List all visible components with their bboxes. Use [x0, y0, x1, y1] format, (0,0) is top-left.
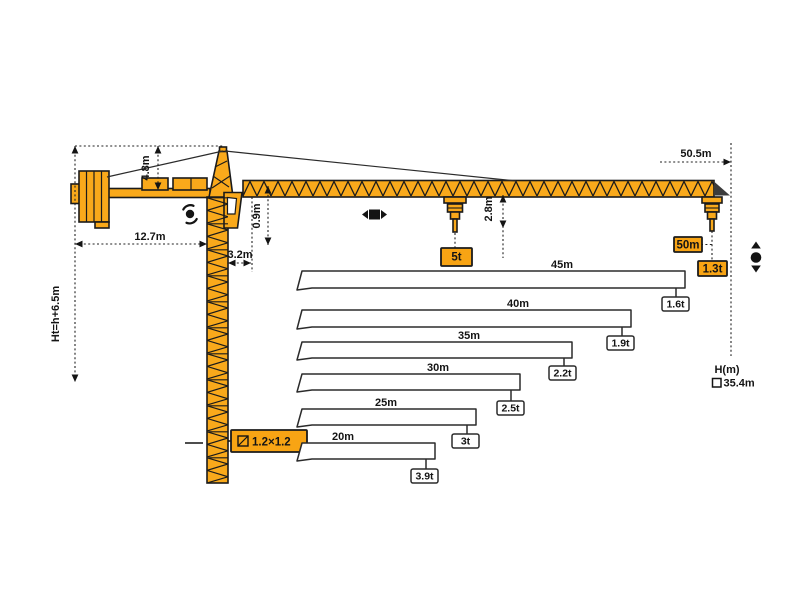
jib-tip-cap — [714, 182, 730, 196]
bar-label-35m: 35m — [458, 330, 480, 342]
bar-25m — [297, 409, 476, 427]
dim-min-radius: 3.2m — [227, 249, 252, 261]
bar-label-45m: 45m — [551, 259, 573, 271]
trolley-hook-tip — [702, 197, 722, 231]
dim-tower-head-height: 4.8m — [140, 155, 152, 180]
tip-capacity-label: 1.3t — [703, 264, 723, 276]
max-capacity-label: 5t — [451, 252, 461, 264]
height-legend-value: 35.4m — [724, 378, 755, 390]
dim-counterjib-length: 12.7m — [134, 231, 165, 243]
tie-bars — [107, 151, 516, 181]
jib-lattice — [243, 181, 714, 198]
trolley-hook-mid — [444, 197, 466, 232]
hoist-updown-icon — [751, 242, 762, 273]
dim-jib-depth: 0.9m — [251, 203, 263, 228]
capacity-label-35m: 2.2t — [553, 368, 572, 380]
load-chart — [297, 271, 689, 483]
bar-30m — [297, 374, 520, 392]
capacity-label-45m: 1.6t — [666, 299, 685, 311]
bar-label-20m: 20m — [332, 431, 354, 443]
bar-label-40m: 40m — [507, 298, 529, 310]
tower-head — [209, 147, 233, 197]
dim-hook-clearance: 2.8m — [483, 196, 495, 221]
capacity-label-30m: 2.5t — [501, 403, 520, 415]
bar-label-25m: 25m — [375, 397, 397, 409]
mast-lattice — [207, 197, 228, 483]
height-axis-label: H(m) — [714, 364, 739, 376]
capacity-label-25m: 3t — [461, 436, 471, 448]
bar-35m — [297, 342, 572, 360]
height-legend-square-icon — [713, 379, 722, 388]
dim-total-height: Ht=h+6.5m — [50, 286, 62, 342]
trolley-travel-icon — [362, 210, 387, 220]
bar-45m — [297, 271, 685, 290]
dim-jib-length: 50.5m — [680, 148, 711, 160]
bar-20m — [297, 443, 435, 461]
capacity-label-40m: 1.9t — [611, 338, 630, 350]
tip-radius-label: 50m — [676, 240, 699, 252]
bar-40m — [297, 310, 631, 329]
bar-label-30m: 30m — [427, 362, 449, 374]
slewing-rotation-icon — [183, 205, 196, 223]
counterweight — [79, 171, 109, 228]
crane-load-diagram: Ht=h+6.5m 4.8m 12.7m 3.2m 0.9m 2.8m 50.5… — [0, 0, 800, 600]
mast-section-label: 1.2×1.2 — [252, 437, 291, 449]
capacity-label-20m: 3.9t — [415, 471, 434, 483]
